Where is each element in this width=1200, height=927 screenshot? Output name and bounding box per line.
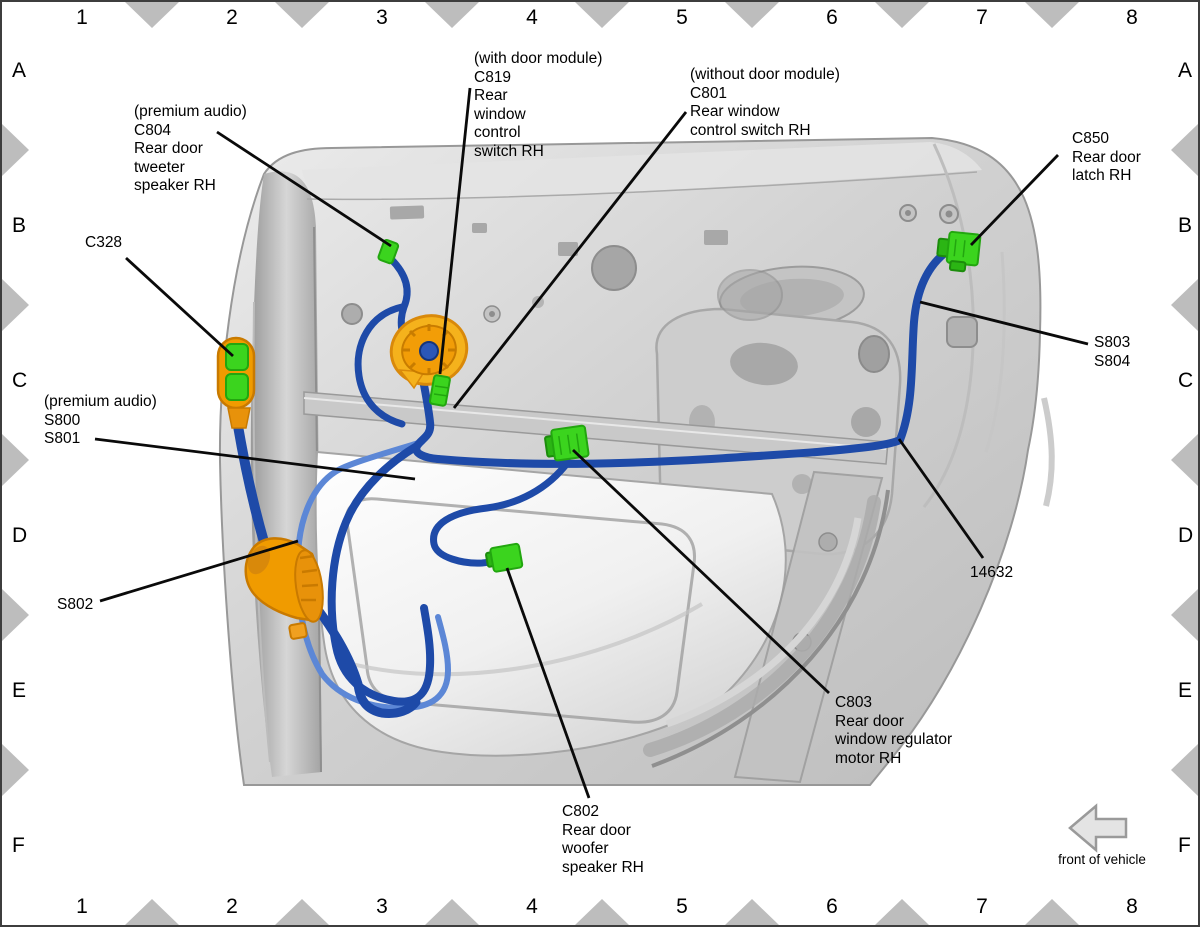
callout-s803-s804: S803S804 <box>1094 334 1130 371</box>
callout-line: (with door module) <box>474 50 602 69</box>
callout-line: (premium audio) <box>134 103 247 122</box>
callout-line: motor RH <box>835 750 952 769</box>
grid-row-label-right: A <box>1178 59 1192 83</box>
callout-c802: C802Rear doorwooferspeaker RH <box>562 803 644 877</box>
callout-line: speaker RH <box>562 859 644 878</box>
callout-c819: (with door module)C819Rearwindowcontrols… <box>474 50 602 162</box>
callout-line: control switch RH <box>690 122 840 141</box>
callout-line: C850 <box>1072 130 1141 149</box>
grid-row-label-left: F <box>12 834 25 858</box>
callout-line: window regulator <box>835 731 952 750</box>
grid-col-label-top: 8 <box>1126 6 1138 30</box>
callout-line: S802 <box>57 596 93 615</box>
callout-line: Rear window <box>690 103 840 122</box>
callout-s802: S802 <box>57 596 93 615</box>
callout-line: (without door module) <box>690 66 840 85</box>
callout-line: Rear door <box>1072 149 1141 168</box>
grid-col-label-bottom: 4 <box>526 895 538 919</box>
callout-c801: (without door module)C801Rear windowcont… <box>690 66 840 140</box>
grid-col-label-top: 3 <box>376 6 388 30</box>
callout-c850: C850Rear doorlatch RH <box>1072 130 1141 186</box>
callout-line: S803 <box>1094 334 1130 353</box>
callout-line: window <box>474 106 602 125</box>
callout-part-14632: 14632 <box>970 564 1013 583</box>
grid-col-label-bottom: 8 <box>1126 895 1138 919</box>
callout-line: C804 <box>134 122 247 141</box>
front-of-vehicle-label: front of vehicle <box>1032 852 1172 867</box>
callout-line: C819 <box>474 69 602 88</box>
front-of-vehicle-arrow-icon <box>1070 806 1126 850</box>
callout-line: S800 <box>44 412 157 431</box>
grid-col-label-bottom: 5 <box>676 895 688 919</box>
callout-line: S801 <box>44 430 157 449</box>
callout-line: Rear <box>474 87 602 106</box>
grid-col-label-top: 5 <box>676 6 688 30</box>
grid-row-label-left: C <box>12 369 27 393</box>
grid-row-label-right: F <box>1178 834 1191 858</box>
callout-c804: (premium audio)C804Rear doortweeterspeak… <box>134 103 247 196</box>
grid-col-label-bottom: 2 <box>226 895 238 919</box>
grid-row-label-left: E <box>12 679 26 703</box>
grid-col-label-bottom: 7 <box>976 895 988 919</box>
callout-line: switch RH <box>474 143 602 162</box>
callout-line: C328 <box>85 234 122 253</box>
callout-line: C803 <box>835 694 952 713</box>
grid-row-label-left: D <box>12 524 27 548</box>
callout-c328: C328 <box>85 234 122 253</box>
callout-line: latch RH <box>1072 167 1141 186</box>
grid-col-label-top: 7 <box>976 6 988 30</box>
grid-col-label-top: 1 <box>76 6 88 30</box>
callout-line: C801 <box>690 85 840 104</box>
callout-line: woofer <box>562 840 644 859</box>
callout-line: speaker RH <box>134 177 247 196</box>
grid-col-label-bottom: 6 <box>826 895 838 919</box>
grid-row-label-right: C <box>1178 369 1193 393</box>
grid-row-label-right: E <box>1178 679 1192 703</box>
callout-line: Rear door <box>134 140 247 159</box>
grid-col-label-top: 4 <box>526 6 538 30</box>
callout-line: S804 <box>1094 353 1130 372</box>
diagram-page: 1122334455667788AABBCCDDEEFF (premium au… <box>0 0 1200 927</box>
callout-line: (premium audio) <box>44 393 157 412</box>
grid-row-label-right: B <box>1178 214 1192 238</box>
connector-c803-icon <box>544 425 589 461</box>
leader-line-c328 <box>126 258 233 356</box>
grid-col-label-top: 2 <box>226 6 238 30</box>
grid-col-label-top: 6 <box>826 6 838 30</box>
callout-line: tweeter <box>134 159 247 178</box>
callout-line: 14632 <box>970 564 1013 583</box>
callout-line: Rear door <box>562 822 644 841</box>
callout-c803: C803Rear doorwindow regulatormotor RH <box>835 694 952 768</box>
grid-row-label-left: B <box>12 214 26 238</box>
grid-col-label-bottom: 3 <box>376 895 388 919</box>
grid-row-label-left: A <box>12 59 26 83</box>
grid-row-label-right: D <box>1178 524 1193 548</box>
callout-s800-s801: (premium audio)S800S801 <box>44 393 157 449</box>
callout-line: Rear door <box>835 713 952 732</box>
callout-line: C802 <box>562 803 644 822</box>
callout-line: control <box>474 124 602 143</box>
grid-col-label-bottom: 1 <box>76 895 88 919</box>
